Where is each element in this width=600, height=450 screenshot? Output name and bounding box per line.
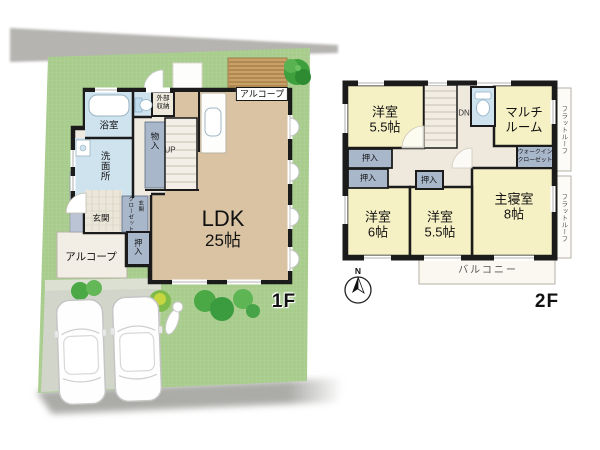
building-2f (345, 83, 571, 303)
car-icon (109, 296, 165, 402)
storage-mono-box (145, 122, 165, 188)
room-2f-bm (410, 187, 472, 256)
oshiire-2f-a-box (348, 149, 392, 168)
compass-icon (345, 277, 371, 303)
room-2f-bl (347, 187, 410, 256)
wood-deck (228, 58, 287, 88)
toilet-icon-2f (475, 92, 491, 116)
outer-storage-box (152, 92, 174, 116)
room-2f-multi (494, 85, 553, 146)
washbasin-icon (76, 140, 90, 156)
balcony-area (419, 258, 555, 284)
floorplan-image: 浴室 洗面所 物入 UP 外部 収納 アルコープ 玄関 玄関 クローゼット 押入… (0, 0, 600, 450)
bathtub-icon (89, 95, 129, 116)
stairs-2f (424, 85, 457, 148)
oshiire-2f-b-box (348, 169, 388, 188)
entrance-closet-box (122, 196, 148, 232)
back-porch-slab (173, 63, 202, 89)
entrance-floor (85, 190, 122, 232)
building-1f (57, 63, 299, 282)
stairs-1f (165, 118, 197, 190)
garden-path (45, 278, 161, 291)
kitchen-counter (201, 93, 226, 153)
alcove-area-1f (57, 232, 127, 278)
oshiire-1f-box (127, 232, 150, 265)
wic-box (517, 146, 553, 168)
room-2f-master (472, 168, 553, 256)
plan-graphics (0, 0, 600, 450)
car-icon (53, 299, 109, 405)
oshiire-2f-c-box (416, 171, 443, 189)
toilet-icon-1f (135, 98, 152, 112)
sink-icon (205, 108, 221, 136)
